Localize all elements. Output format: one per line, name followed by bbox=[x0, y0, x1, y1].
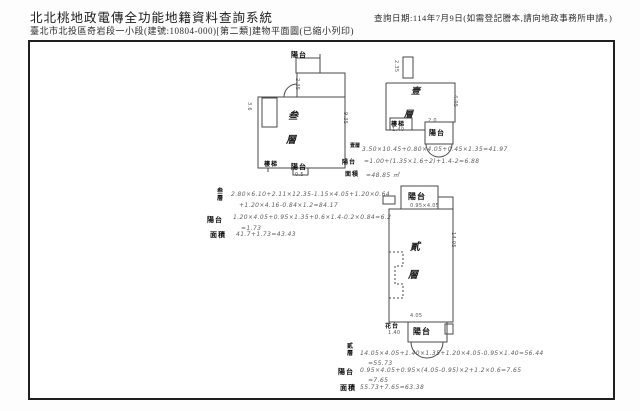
dimension-label: 4.05 bbox=[410, 313, 422, 319]
calc-third-row1-formula-b: +1.20×4.16-0.84×1.2=84.17 bbox=[239, 202, 338, 209]
calc-third-row2-formula-a: 1.20×4.05+0.95×1.35+0.6×1.4-0.2×0.84=6.2 bbox=[233, 214, 391, 221]
calc-first-row3-formula: =48.85 ㎡ bbox=[366, 170, 399, 179]
third-floor-char-2: 層 bbox=[286, 131, 296, 146]
dimension-label: 2.0 bbox=[428, 118, 437, 124]
first-floor-char-1: 壹 bbox=[411, 84, 420, 97]
third-floor-top-balcony-box bbox=[296, 58, 320, 73]
calc-third-row1-label-bottom: 層 bbox=[215, 195, 225, 202]
dimension-label: 3.6 bbox=[246, 102, 252, 111]
calc-first-row3-label: 面積 bbox=[345, 169, 359, 178]
calc-second-row3-label: 面積 bbox=[340, 383, 356, 393]
calc-third-row1-label: 叁 層 bbox=[215, 188, 225, 202]
calc-second-row3-formula: 55.73+7.65=63.38 bbox=[360, 384, 424, 391]
first-floor-balcony-label: 陽台 bbox=[429, 128, 445, 138]
calc-third-row1-label-top: 叁 bbox=[215, 188, 225, 195]
document-title: 臺北市北投區奇岩段一小段(建號:10804-000)[第二類]建物平面圖(已縮小… bbox=[30, 24, 354, 37]
third-floor-top-balcony-label: 陽台 bbox=[291, 50, 307, 60]
dimension-label: 2.35 bbox=[294, 78, 300, 90]
calc-second-row1-label-top: 貳 bbox=[345, 343, 355, 350]
second-floor-bottom-balcony-label: 陽台 bbox=[413, 326, 431, 337]
calc-first-row2-formula: =1.00+(1.35×1.6÷2)+1.4-2=6.88 bbox=[364, 158, 479, 165]
calc-second-row2-formula-a: 0.95×4.05+0.95×(4.05-0.95)×2+1.2×0.6=7.6… bbox=[360, 367, 522, 374]
dimension-label: 2.35 bbox=[393, 60, 399, 72]
calc-first-row2-label: 陽台 bbox=[342, 157, 356, 166]
calc-first-row1-label: 壹層 bbox=[350, 143, 360, 149]
calc-second-row2-formula-b: =7.65 bbox=[368, 377, 388, 384]
dimension-label: 4.05 bbox=[452, 95, 458, 107]
calc-second-row2-label: 陽台 bbox=[338, 367, 354, 377]
calc-third-row1-formula-a: 2.80×6.10+2.11×12.35-1.15×4.05+1.20×0.64 bbox=[231, 191, 390, 198]
first-floor-char-2: 層 bbox=[404, 107, 413, 120]
calc-third-row3-label: 面積 bbox=[210, 230, 226, 240]
third-floor-char-1: 叁 bbox=[288, 107, 298, 122]
third-floor-stair-label: 樓梯 bbox=[264, 159, 278, 168]
second-floor-char-1: 貳 bbox=[410, 238, 420, 253]
land-registry-query-page: 北北桃地政電傳全功能地籍資料查詢系統 查詢日期:114年7月9日(如需登記謄本,… bbox=[0, 0, 640, 411]
calc-second-row1-formula-b: =55.73 bbox=[368, 360, 393, 367]
interior-dashed-partition bbox=[389, 252, 403, 298]
calc-third-row2-label: 陽台 bbox=[207, 215, 223, 225]
second-floor-top-balcony-label: 陽台 bbox=[408, 191, 426, 202]
second-floor-planter-label: 花台 bbox=[385, 321, 399, 330]
dimension-label: 9.35 bbox=[342, 112, 348, 124]
calc-second-row1-formula-a: 14.05×4.05+1.40×1.35+1.20×4.05-0.95×1.40… bbox=[360, 350, 544, 357]
dimension-label: 1.40 bbox=[392, 127, 404, 133]
calc-second-row1-label: 貳 層 bbox=[345, 343, 355, 357]
dimension-label: 14.05 bbox=[450, 232, 456, 248]
dimension-label: 0.5 bbox=[295, 172, 304, 178]
calc-second-row1-label-bottom: 層 bbox=[345, 350, 355, 357]
dimension-label: 1.40 bbox=[388, 330, 400, 336]
dimension-label: 0.95×4.05 bbox=[410, 203, 439, 209]
plan-third-floor-outline bbox=[258, 54, 345, 175]
query-date: 查詢日期:114年7月9日(如需登記謄本,請向地政事務所申請。) bbox=[374, 12, 612, 24]
calc-first-row1-formula: 3.50×10.45+0.80×4.05+0.45×1.35=41.97 bbox=[362, 146, 508, 153]
calc-third-row3-formula: 41.7+1.73=43.43 bbox=[236, 231, 296, 238]
second-floor-char-2: 層 bbox=[408, 266, 418, 281]
third-floor-bottom-balcony-label: 陽台 bbox=[291, 162, 307, 172]
